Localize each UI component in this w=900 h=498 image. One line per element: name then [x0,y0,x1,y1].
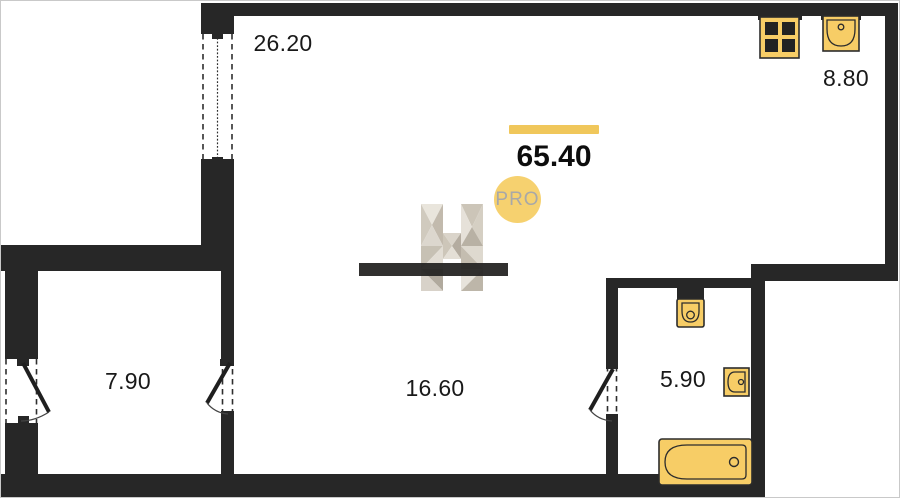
balcony-door-icon [6,359,49,423]
bedroom-door-icon [207,359,234,418]
total-area-label: 65.40 [506,140,602,174]
pro-badge: PRO [494,176,541,223]
bathroom-door-icon [590,362,618,421]
toilet-icon [677,285,704,327]
pro-badge-text: PRO [495,189,539,211]
kitchen-sink-icon [821,14,861,51]
stove-icon [758,14,802,58]
window-icon [203,31,232,166]
bedroom-area-label: 7.90 [104,368,152,395]
floor-plan: 26.20 8.80 7.90 16.60 5.90 65.40 PRO [0,0,900,498]
kitchen-area-label: 8.80 [821,65,871,92]
balcony-window-label: 26.20 [251,30,315,57]
accent-bar [509,125,599,134]
bathroom-area-label: 5.90 [659,366,707,393]
bathroom-sink-icon [724,368,749,396]
bathtub-icon [659,439,752,485]
living-area-label: 16.60 [404,375,466,402]
